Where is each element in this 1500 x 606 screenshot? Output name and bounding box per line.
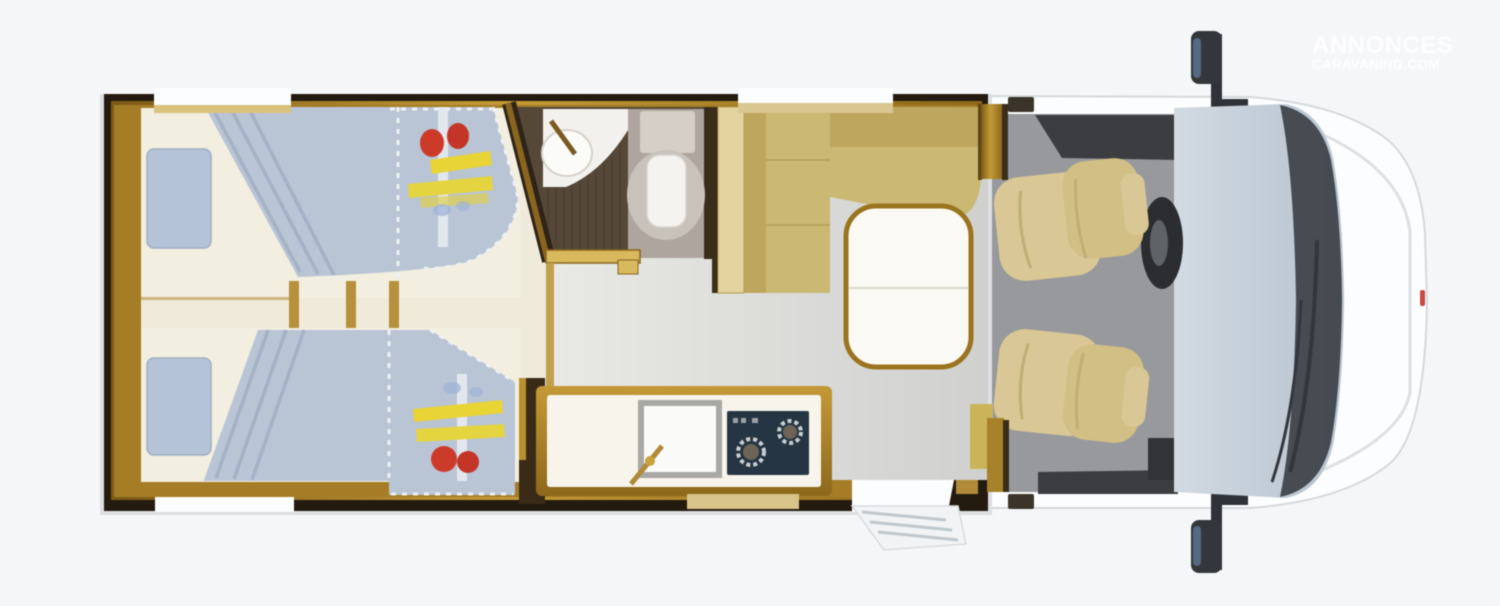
svg-text:CARAVANING.COM: CARAVANING.COM bbox=[1312, 57, 1440, 72]
svg-text:ANNONCES: ANNONCES bbox=[1312, 32, 1453, 59]
